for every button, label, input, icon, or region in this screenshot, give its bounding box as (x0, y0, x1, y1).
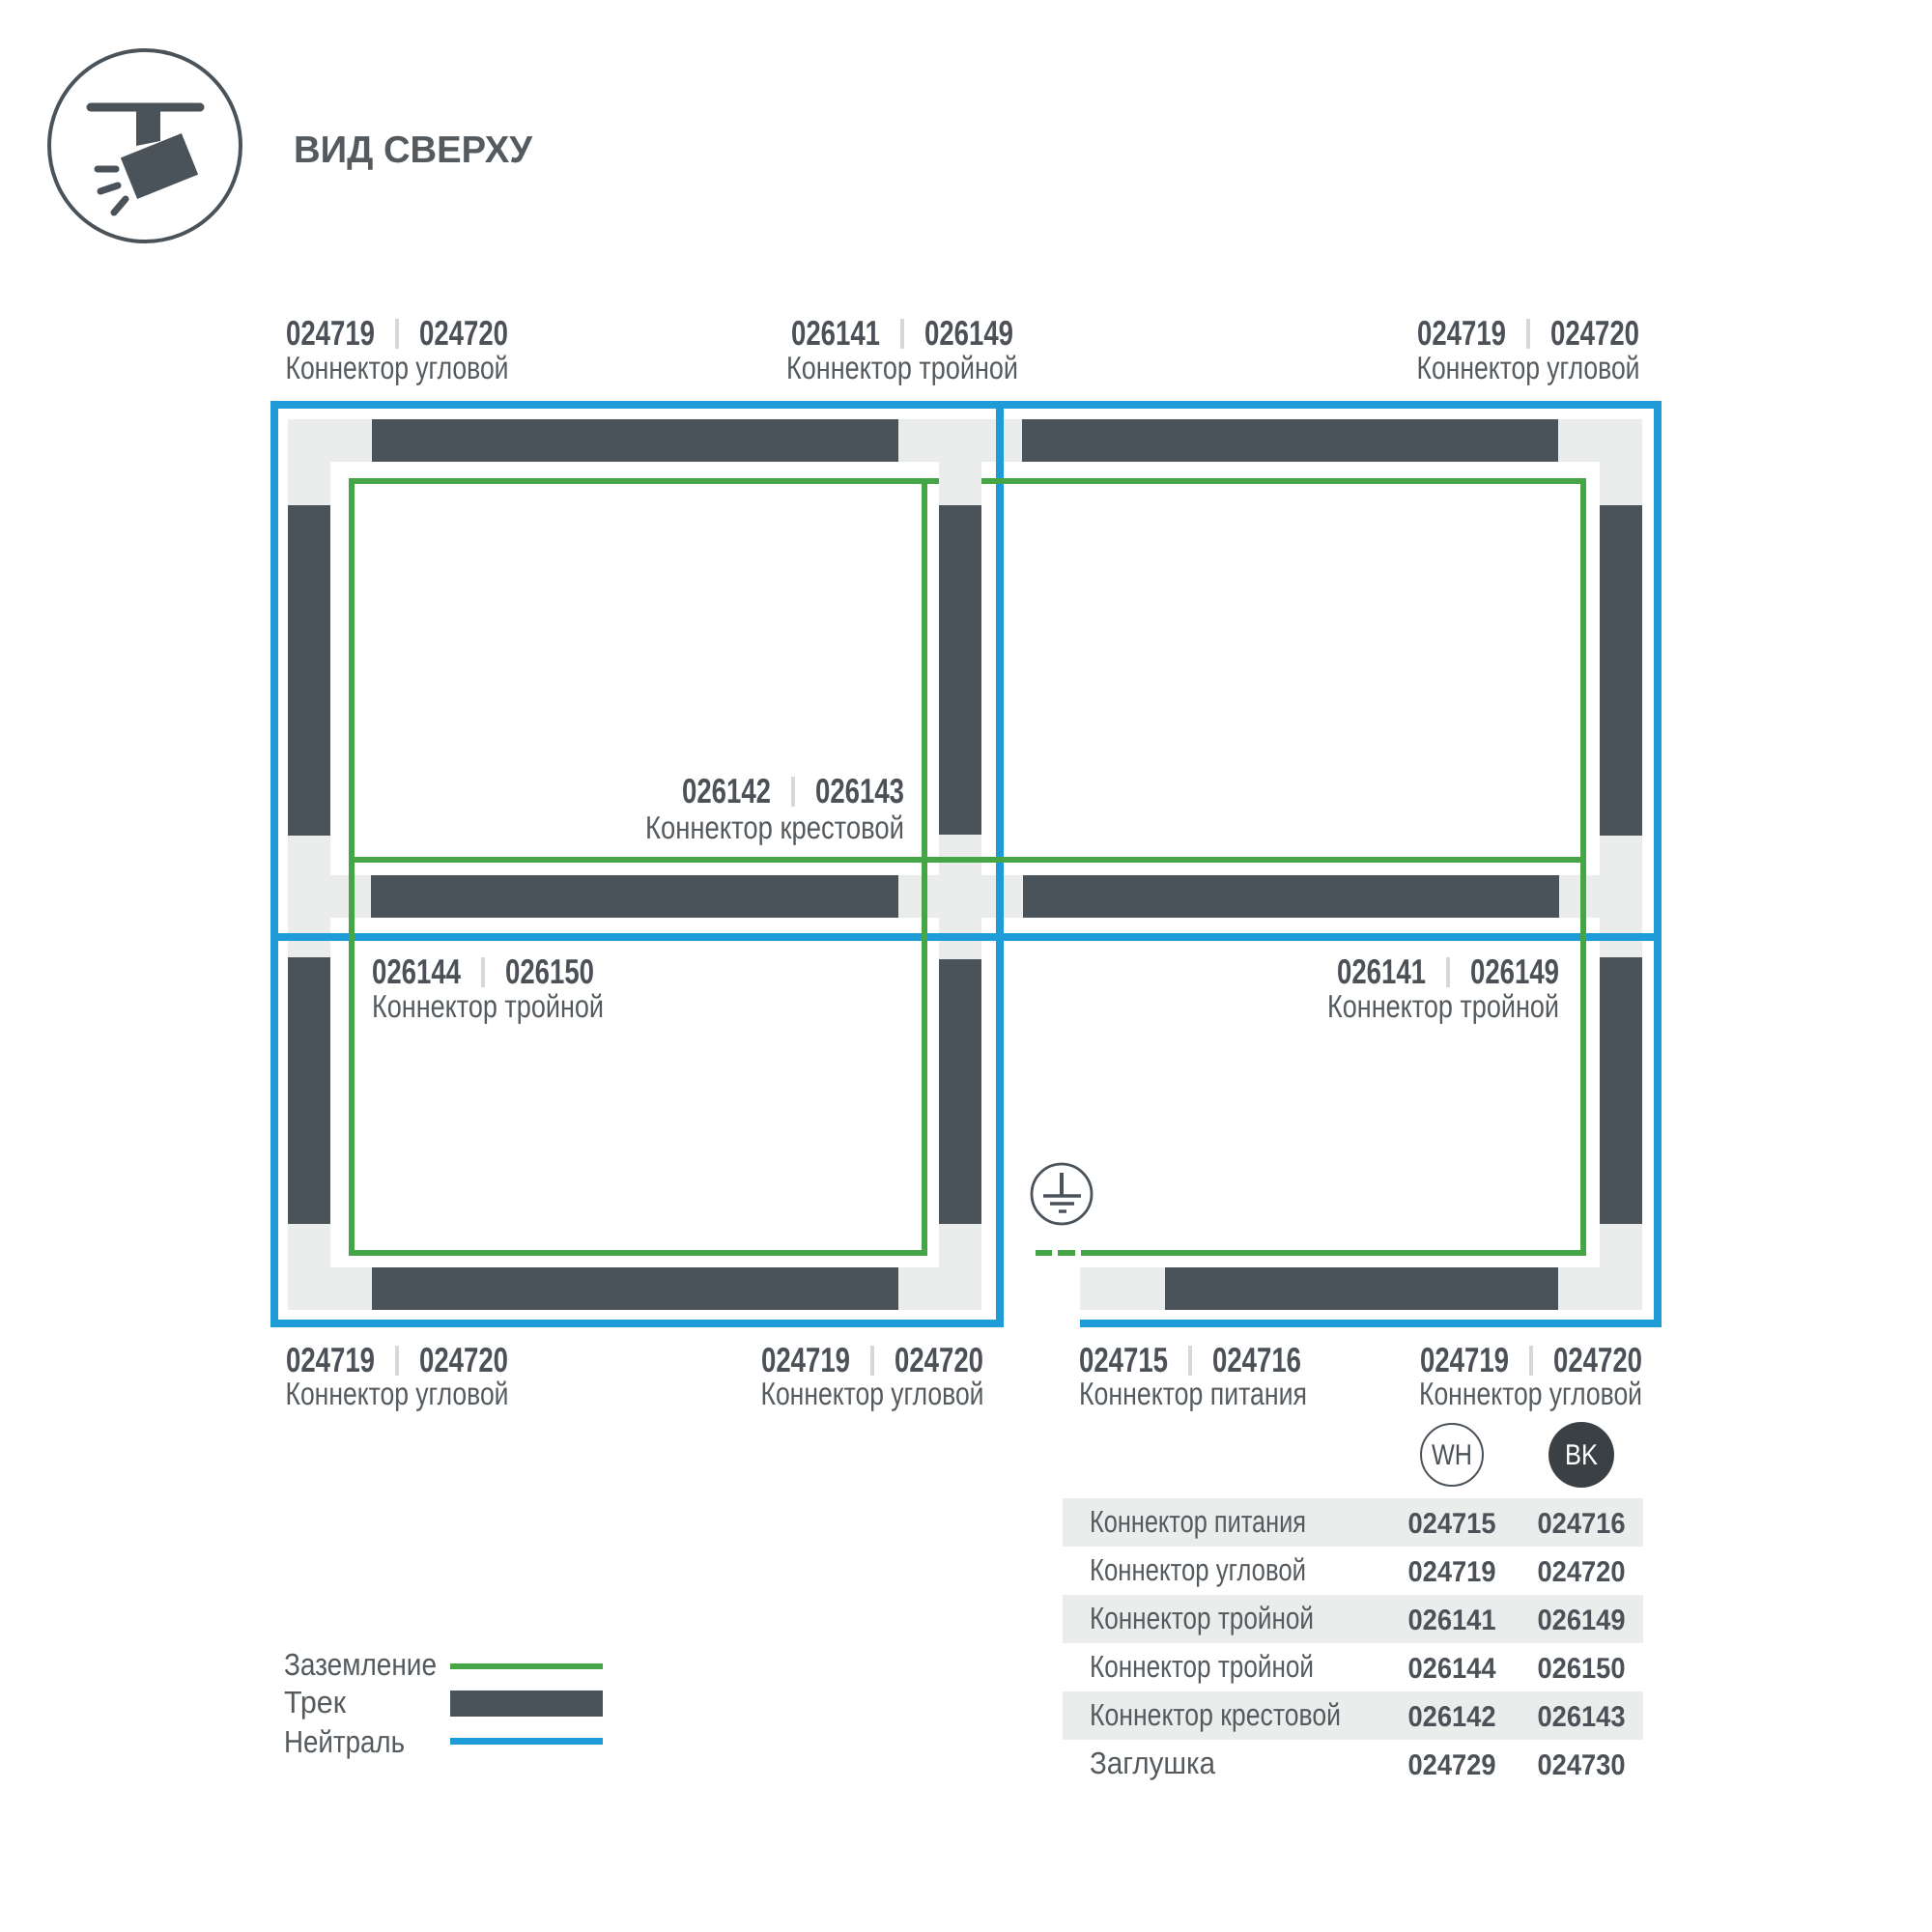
svg-text:024716: 024716 (1538, 1508, 1626, 1540)
svg-text:026149: 026149 (1470, 952, 1559, 991)
svg-text:Коннектор тройной: Коннектор тройной (786, 350, 1018, 385)
svg-text:024720: 024720 (419, 313, 508, 353)
svg-text:026141: 026141 (1408, 1605, 1496, 1636)
svg-text:024719: 024719 (1420, 1340, 1509, 1379)
svg-text:026150: 026150 (1538, 1653, 1626, 1685)
svg-text:024719: 024719 (761, 1340, 850, 1379)
svg-text:024720: 024720 (419, 1340, 508, 1379)
svg-text:BK: BK (1565, 1439, 1598, 1471)
svg-text:Коннектор питания: Коннектор питания (1090, 1504, 1306, 1539)
svg-text:Заземление: Заземление (284, 1647, 437, 1682)
svg-text:024729: 024729 (1408, 1749, 1496, 1781)
svg-text:026149: 026149 (924, 313, 1013, 353)
svg-text:024730: 024730 (1538, 1749, 1626, 1781)
svg-text:024715: 024715 (1408, 1508, 1496, 1540)
svg-text:026142: 026142 (1408, 1701, 1496, 1733)
svg-text:026149: 026149 (1538, 1605, 1626, 1636)
svg-text:Коннектор угловой: Коннектор угловой (1417, 350, 1640, 385)
svg-text:024720: 024720 (1553, 1340, 1642, 1379)
svg-text:Коннектор крестовой: Коннектор крестовой (645, 810, 904, 845)
svg-text:026141: 026141 (1337, 952, 1426, 991)
svg-text:Коннектор крестовой: Коннектор крестовой (1090, 1697, 1341, 1732)
svg-text:Коннектор питания: Коннектор питания (1079, 1376, 1307, 1411)
svg-text:026143: 026143 (815, 771, 904, 810)
svg-text:026142: 026142 (682, 771, 771, 810)
svg-text:Заглушка: Заглушка (1090, 1746, 1215, 1780)
svg-text:026143: 026143 (1538, 1701, 1626, 1733)
svg-text:Трек: Трек (284, 1685, 347, 1719)
svg-text:024719: 024719 (286, 313, 375, 353)
svg-text:024719: 024719 (1408, 1556, 1496, 1588)
svg-text:024720: 024720 (1550, 313, 1639, 353)
svg-text:024720: 024720 (1538, 1556, 1626, 1588)
svg-text:024719: 024719 (286, 1340, 375, 1379)
svg-text:Нейтраль: Нейтраль (284, 1724, 405, 1759)
svg-text:Коннектор тройной: Коннектор тройной (1090, 1601, 1314, 1635)
svg-text:Коннектор тройной: Коннектор тройной (1327, 988, 1559, 1024)
svg-text:024715: 024715 (1079, 1340, 1168, 1379)
svg-text:Коннектор угловой: Коннектор угловой (1419, 1376, 1642, 1411)
svg-text:Коннектор угловой: Коннектор угловой (286, 1376, 509, 1411)
svg-text:Коннектор угловой: Коннектор угловой (286, 350, 509, 385)
svg-text:024719: 024719 (1417, 313, 1506, 353)
svg-text:ВИД СВЕРХУ: ВИД СВЕРХУ (294, 129, 533, 171)
svg-text:026144: 026144 (1408, 1653, 1496, 1685)
svg-text:026144: 026144 (372, 952, 461, 991)
svg-text:026141: 026141 (791, 313, 880, 353)
svg-text:024716: 024716 (1212, 1340, 1301, 1379)
svg-text:Коннектор тройной: Коннектор тройной (372, 988, 604, 1024)
svg-text:Коннектор угловой: Коннектор угловой (1090, 1552, 1306, 1587)
svg-text:Коннектор угловой: Коннектор угловой (761, 1376, 984, 1411)
svg-text:Коннектор тройной: Коннектор тройной (1090, 1649, 1314, 1684)
svg-text:026150: 026150 (505, 952, 594, 991)
svg-text:WH: WH (1432, 1439, 1472, 1471)
svg-text:024720: 024720 (895, 1340, 983, 1379)
